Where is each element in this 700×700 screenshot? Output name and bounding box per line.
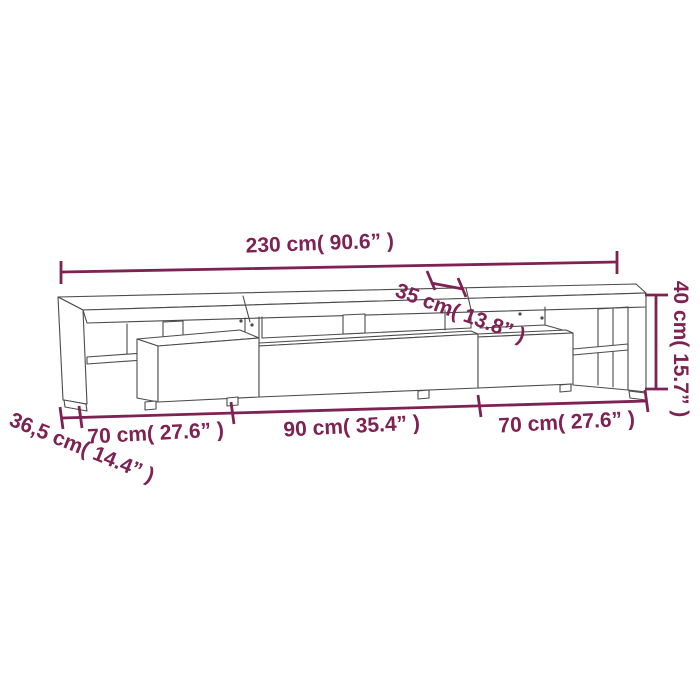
back-wall-hole: [250, 323, 253, 326]
product-dimension-image: 230 cm( 90.6” ) 35 cm( 13.8” ) 40 cm( 15…: [0, 0, 700, 700]
dim-height-line: [645, 295, 668, 389]
left-side-panel: [58, 297, 87, 404]
left-drawer: [137, 330, 259, 402]
back-wall-hole: [239, 319, 242, 322]
dim-total-width-label: 230 cm( 90.6” ): [245, 229, 394, 257]
right-side-panel-foot: [629, 391, 646, 400]
back-wall-hole: [540, 316, 543, 319]
dim-left-section-label: 70 cm( 27.6” ): [87, 418, 225, 448]
dim-height-label: 40 cm( 15.7” ): [669, 281, 692, 418]
right-compartment: [573, 307, 646, 400]
middle-drawer: [259, 331, 478, 397]
dim-right-section-label: 70 cm( 27.6” ): [498, 407, 636, 437]
niche-divider-middle: [343, 314, 365, 334]
right-shelf: [573, 344, 628, 355]
right-drawer: [478, 330, 573, 388]
dim-middle-section-label: 90 cm( 35.4” ): [283, 411, 421, 441]
back-wall-hole: [518, 312, 521, 315]
dim-total-width-line: [61, 251, 617, 284]
tv-stand-drawing: [58, 284, 646, 411]
tv-stand-diagram: 230 cm( 90.6” ) 35 cm( 13.8” ) 40 cm( 15…: [0, 0, 700, 700]
